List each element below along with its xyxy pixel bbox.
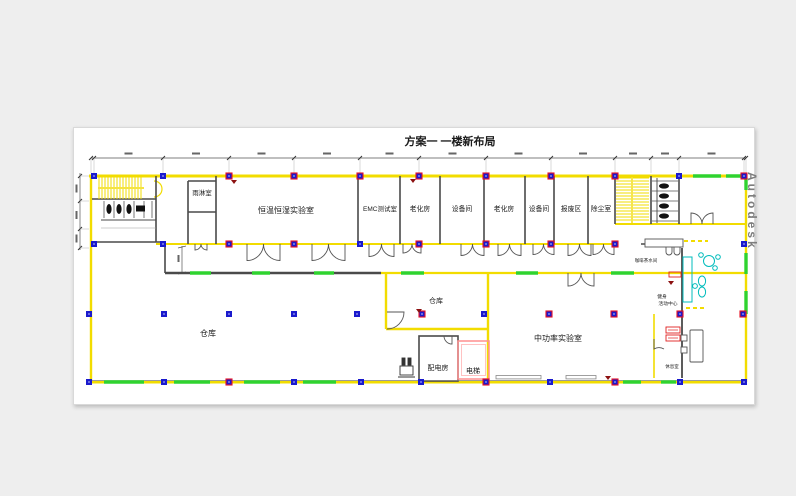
column-dot xyxy=(420,381,421,382)
staircases xyxy=(98,177,649,223)
column-dot xyxy=(421,313,422,314)
windows xyxy=(496,376,596,379)
door-arc xyxy=(581,273,594,286)
column-dot xyxy=(742,313,743,314)
column-dot xyxy=(550,175,551,176)
column-dot xyxy=(360,381,361,382)
column-dot xyxy=(548,313,549,314)
door-arc xyxy=(510,244,522,256)
door-arc xyxy=(312,244,329,261)
rest-area-table xyxy=(681,330,703,362)
column-dot xyxy=(359,243,360,244)
column-dot xyxy=(679,313,680,314)
dim-number-smudge xyxy=(76,235,78,243)
door-arc xyxy=(702,213,713,224)
triangle-marker xyxy=(410,179,416,183)
column-dot xyxy=(614,243,615,244)
label-rest-room: 休息室 xyxy=(665,363,679,370)
label-equipment-2: 设备间 xyxy=(529,204,550,213)
column-dot xyxy=(293,313,294,314)
door-arc xyxy=(473,244,485,256)
door-arc xyxy=(461,244,473,256)
label-fitness-1: 健身 xyxy=(657,293,667,300)
label-coffee-pantry: 咖啡茶水间 xyxy=(635,257,658,264)
label-mid-power-lab: 中功率实验室 xyxy=(534,333,582,343)
cad-drawing-canvas[interactable]: 方案一 一楼新布局 xyxy=(73,127,755,405)
toilet-fixtures-left xyxy=(101,201,156,228)
column-dot xyxy=(293,243,294,244)
column-dot xyxy=(483,313,484,314)
triangle-marker xyxy=(668,281,674,285)
column-dot xyxy=(228,313,229,314)
label-aging-2: 老化房 xyxy=(494,204,515,213)
room-labels: 雨淋室 恒温恒湿实验室 EMC测试室 老化房 设备间 老化房 设备间 报废区 除… xyxy=(192,188,679,375)
column-dot xyxy=(293,175,294,176)
column-dot xyxy=(549,381,550,382)
door-arc xyxy=(568,273,581,286)
dim-number-smudge xyxy=(579,153,587,155)
autodesk-watermark: Autodesk xyxy=(745,172,759,251)
power-room-door xyxy=(444,336,452,344)
column-dot xyxy=(88,313,89,314)
single-doors xyxy=(387,312,664,349)
dim-number-smudge xyxy=(708,153,716,155)
dim-number-smudge xyxy=(661,153,669,155)
column-dot xyxy=(93,243,94,244)
door-arc xyxy=(498,244,510,256)
toilet-fixtures-right xyxy=(652,178,678,223)
door-arc xyxy=(691,213,702,224)
column-dot xyxy=(359,175,360,176)
door-arc xyxy=(264,244,281,261)
column-dot xyxy=(678,175,679,176)
column-dot xyxy=(614,175,615,176)
dim-number-smudge xyxy=(449,153,457,155)
coffee-counter xyxy=(645,239,683,255)
column-dot xyxy=(88,381,89,382)
column-dot xyxy=(418,243,419,244)
column-dot xyxy=(356,313,357,314)
dim-number-smudge xyxy=(76,185,78,193)
dimension-ticks xyxy=(76,153,749,251)
triangle-marker xyxy=(231,180,237,184)
label-dust-room: 除尘室 xyxy=(591,204,612,213)
dim-number-smudge xyxy=(386,153,394,155)
column-dot xyxy=(228,381,229,382)
door-arc xyxy=(568,244,580,256)
warehouse-small-door xyxy=(387,312,404,329)
column-dot xyxy=(162,243,163,244)
dim-number-smudge xyxy=(258,153,266,155)
column-dot xyxy=(613,313,614,314)
label-aging-1: 老化房 xyxy=(410,204,431,213)
column-dot xyxy=(93,175,94,176)
column-dot xyxy=(614,381,615,382)
label-rain-room: 雨淋室 xyxy=(192,188,212,197)
rest-room-door xyxy=(654,339,664,349)
label-fitness-2: 活动中心 xyxy=(658,300,677,307)
column-dot xyxy=(485,381,486,382)
column-dot xyxy=(418,175,419,176)
dim-number-smudge xyxy=(515,153,523,155)
label-warehouse-small: 仓库 xyxy=(429,296,443,305)
column-dot xyxy=(485,243,486,244)
floor-plan-svg: 方案一 一楼新布局 xyxy=(74,128,754,404)
column-dot xyxy=(162,175,163,176)
label-equipment-1: 设备间 xyxy=(452,204,473,213)
door-arc xyxy=(382,244,395,257)
dim-number-smudge xyxy=(629,153,637,155)
dim-number-smudge xyxy=(125,153,133,155)
label-warehouse-main: 仓库 xyxy=(200,328,216,338)
dim-number-smudge xyxy=(76,211,78,219)
door-arc xyxy=(247,244,264,261)
lounge-furniture-cyan xyxy=(683,253,720,302)
drawing-title: 方案一 一楼新布局 xyxy=(404,134,495,148)
label-humidity-lab: 恒温恒湿实验室 xyxy=(258,205,314,215)
label-scrap-area: 报废区 xyxy=(561,204,582,213)
column-dot xyxy=(485,175,486,176)
triangle-marker xyxy=(605,376,611,380)
column-dot xyxy=(743,381,744,382)
door-arc xyxy=(403,244,412,253)
column-dot xyxy=(293,381,294,382)
application-background: { "title": "方案一 一楼新布局", "watermark": "Au… xyxy=(0,0,796,496)
dim-number-smudge xyxy=(323,153,331,155)
label-elevator: 电梯 xyxy=(466,366,480,375)
transformer-fixture xyxy=(398,358,415,377)
column-dot xyxy=(550,243,551,244)
column-dot xyxy=(163,313,164,314)
column-dot xyxy=(228,175,229,176)
column-dot xyxy=(679,381,680,382)
label-power-room: 配电房 xyxy=(428,363,449,372)
column-dot xyxy=(228,243,229,244)
dim-number-smudge xyxy=(192,153,200,155)
door-arc xyxy=(593,244,604,255)
label-emc-room: EMC测试室 xyxy=(363,204,397,213)
door-arc xyxy=(329,244,346,261)
column-dot xyxy=(163,381,164,382)
door-arc xyxy=(533,244,544,255)
door-arc xyxy=(580,244,592,256)
door-arc xyxy=(369,244,382,257)
